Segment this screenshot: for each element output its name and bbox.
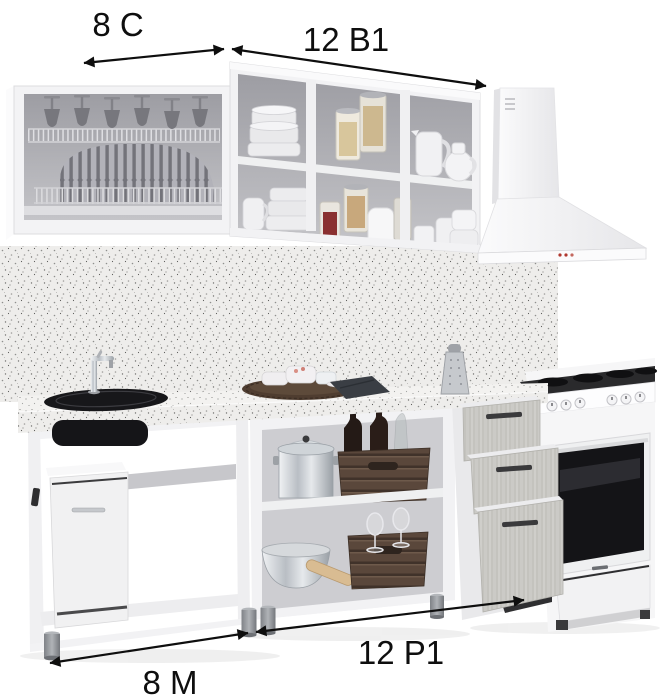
waste-bin-cabinet — [46, 462, 128, 628]
hood-canopy — [478, 197, 646, 253]
sink-bowl-under — [52, 420, 148, 446]
label-wall-cabinet-8C: 8 С — [92, 6, 143, 43]
oven-door — [550, 433, 650, 575]
cabinet-divider — [306, 80, 316, 231]
base-cabinet-12P1 — [250, 396, 455, 620]
product-image: 8 С 12 В1 12 Р1 8 М — [0, 0, 660, 700]
cabinet-divider — [400, 90, 410, 243]
drawer-bottom — [474, 496, 563, 612]
bowl-stack — [248, 106, 300, 157]
wall-cabinet-8C — [6, 86, 230, 240]
kitchen-scene: 8 С 12 В1 12 Р1 8 М — [0, 0, 660, 700]
wall-cabinet-12B1 — [230, 62, 480, 253]
label-base-cabinet-8M: 8 М — [142, 664, 197, 700]
hood-indicator-lights — [558, 253, 573, 256]
mini-door-handle — [72, 508, 105, 512]
range-hood — [478, 88, 646, 264]
base-cabinet-8M — [28, 414, 250, 652]
stove-foot — [556, 620, 568, 630]
label-wall-cabinet-12B1: 12 В1 — [303, 21, 389, 58]
stove-foot — [640, 610, 650, 619]
cabinet-side-panel — [6, 86, 14, 240]
dimension-line-8C — [84, 49, 224, 63]
hood-duct — [498, 88, 559, 202]
label-base-cabinet-12P1: 12 Р1 — [358, 634, 444, 671]
wine-crate-bottom — [348, 532, 428, 589]
